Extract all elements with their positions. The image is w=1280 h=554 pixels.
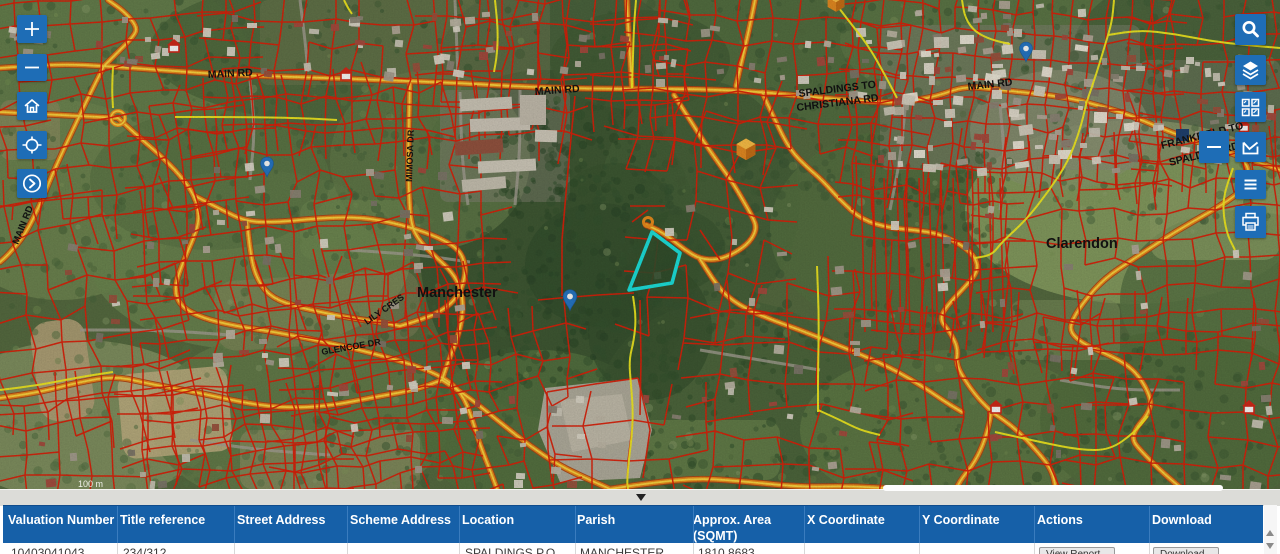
svg-text:Clarendon: Clarendon — [1046, 236, 1118, 252]
svg-text:MIMOSA DR: MIMOSA DR — [404, 129, 416, 182]
svg-text:100 m: 100 m — [78, 479, 103, 489]
svg-text:Manchester: Manchester — [417, 285, 498, 301]
svg-text:MAIN RD: MAIN RD — [208, 67, 254, 81]
